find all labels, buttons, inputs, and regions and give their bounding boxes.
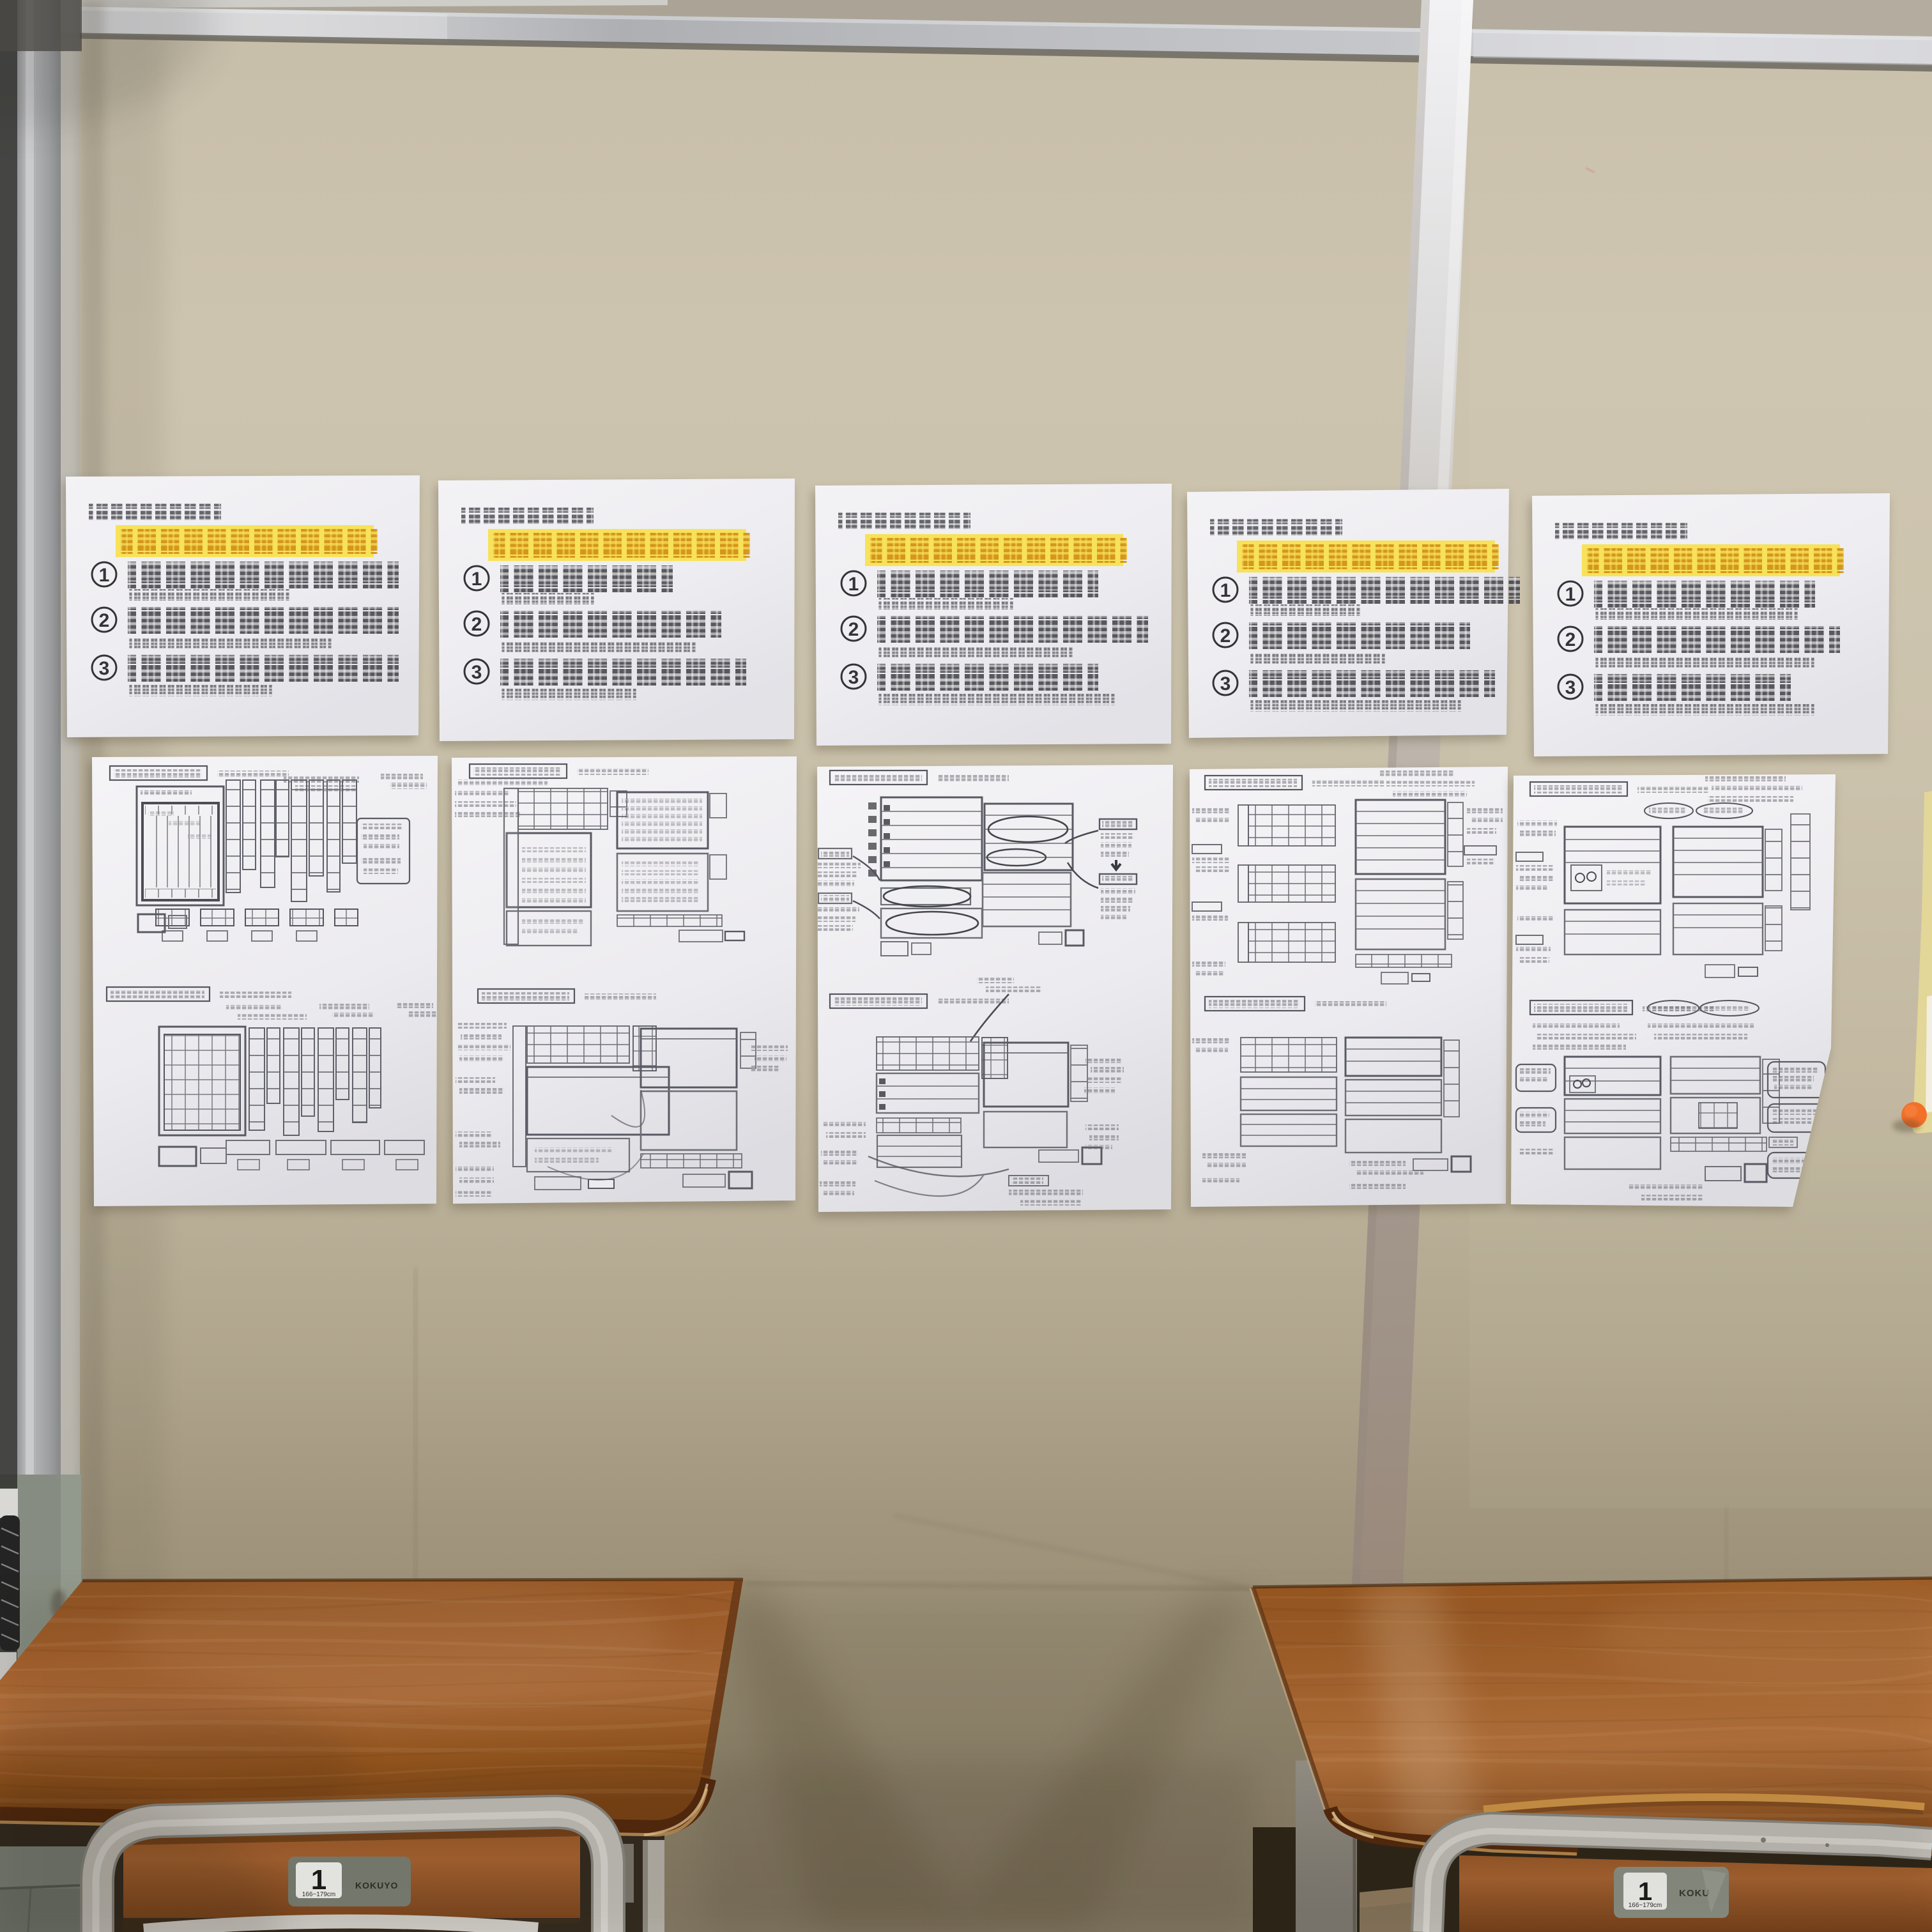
svg-text:1: 1 xyxy=(848,574,859,595)
svg-text:1: 1 xyxy=(1220,580,1231,601)
svg-text:3: 3 xyxy=(848,667,859,688)
svg-text:2: 2 xyxy=(848,619,859,640)
svg-text:1: 1 xyxy=(1565,584,1576,605)
svg-text:2: 2 xyxy=(471,614,482,635)
svg-text:2: 2 xyxy=(1220,625,1231,647)
svg-text:3: 3 xyxy=(471,662,482,683)
svg-text:3: 3 xyxy=(1565,677,1576,698)
svg-text:2: 2 xyxy=(99,610,110,631)
svg-text:3: 3 xyxy=(1220,673,1231,694)
svg-text:1: 1 xyxy=(99,565,110,586)
svg-text:3: 3 xyxy=(99,658,110,679)
svg-text:1: 1 xyxy=(471,569,482,590)
svg-text:2: 2 xyxy=(1565,629,1576,650)
